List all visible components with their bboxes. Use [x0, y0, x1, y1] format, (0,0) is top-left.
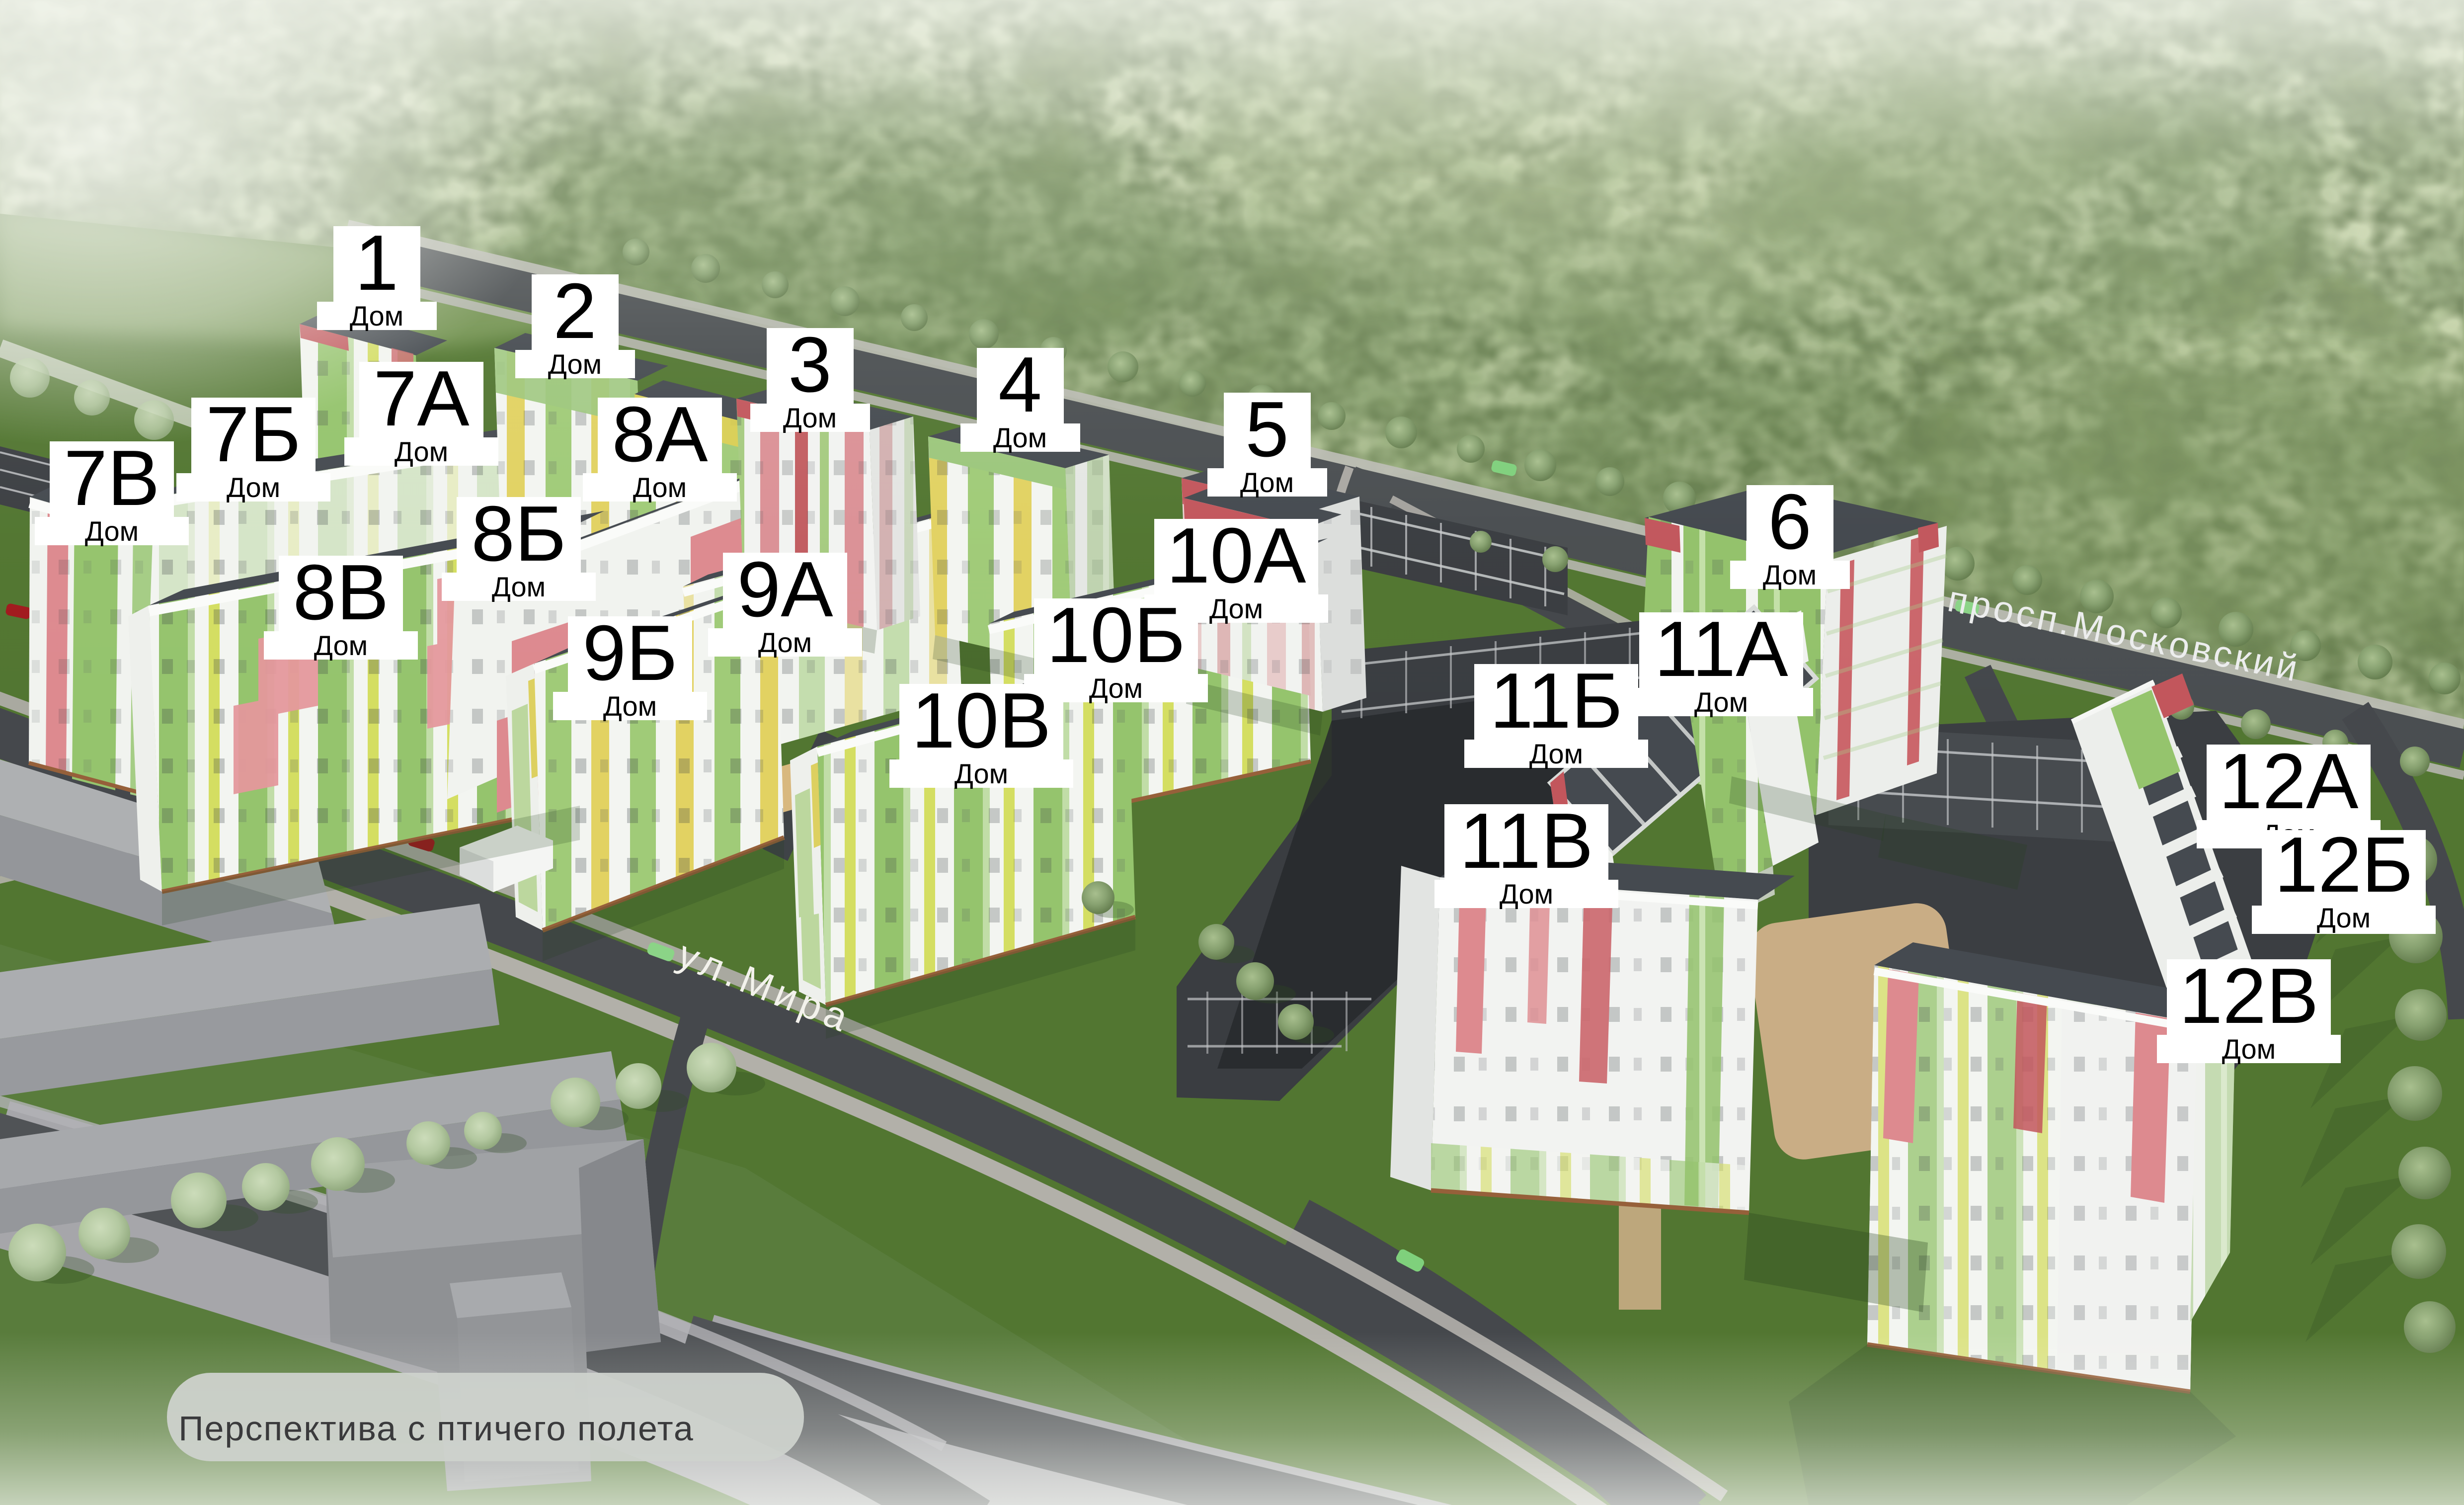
svg-text:Дом: Дом — [1089, 672, 1143, 704]
svg-text:Дом: Дом — [548, 348, 602, 380]
svg-text:8Б: 8Б — [471, 490, 566, 578]
svg-text:Дом: Дом — [1240, 467, 1294, 498]
svg-text:Дом: Дом — [1500, 878, 1553, 910]
svg-text:Дом: Дом — [395, 436, 448, 467]
svg-text:1: 1 — [355, 219, 398, 307]
svg-text:9Б: 9Б — [582, 609, 678, 697]
svg-text:8В: 8В — [293, 549, 389, 636]
svg-text:Дом: Дом — [1694, 686, 1748, 718]
svg-text:Дом: Дом — [783, 402, 837, 433]
svg-text:12В: 12В — [2179, 952, 2318, 1040]
svg-text:Дом: Дом — [227, 472, 280, 503]
svg-text:12Б: 12Б — [2274, 821, 2413, 909]
svg-text:8А: 8А — [612, 391, 708, 478]
svg-text:9А: 9А — [737, 546, 833, 633]
svg-text:11В: 11В — [1459, 797, 1593, 885]
svg-text:11А: 11А — [1654, 605, 1788, 693]
svg-text:4: 4 — [998, 341, 1042, 428]
svg-text:Дом: Дом — [1209, 593, 1263, 624]
svg-text:10Б: 10Б — [1046, 591, 1185, 679]
svg-text:Дом: Дом — [993, 422, 1047, 453]
svg-text:7Б: 7Б — [206, 391, 301, 478]
svg-text:Перспектива с птичего полета: Перспектива с птичего полета — [178, 1409, 694, 1448]
svg-text:Дом: Дом — [2222, 1033, 2276, 1065]
svg-text:10В: 10В — [911, 677, 1051, 764]
svg-text:Дом: Дом — [314, 630, 368, 661]
svg-text:Дом: Дом — [758, 627, 812, 658]
svg-text:Дом: Дом — [492, 571, 546, 602]
svg-text:3: 3 — [788, 321, 832, 409]
svg-text:7А: 7А — [373, 355, 470, 442]
svg-text:6: 6 — [1768, 478, 1812, 566]
svg-text:10А: 10А — [1166, 512, 1306, 599]
svg-text:11Б: 11Б — [1490, 657, 1623, 745]
svg-text:Дом: Дом — [85, 515, 139, 547]
svg-text:Дом: Дом — [1763, 559, 1817, 590]
svg-text:5: 5 — [1245, 386, 1289, 473]
svg-text:Дом: Дом — [1529, 738, 1583, 769]
svg-text:7В: 7В — [64, 434, 159, 522]
svg-text:Дом: Дом — [633, 472, 687, 503]
svg-text:2: 2 — [553, 267, 597, 355]
svg-text:Дом: Дом — [954, 758, 1008, 789]
svg-text:12А: 12А — [2219, 738, 2359, 825]
svg-text:Дом: Дом — [603, 690, 657, 722]
svg-text:Дом: Дом — [350, 300, 403, 332]
svg-text:Дом: Дом — [2317, 902, 2371, 933]
